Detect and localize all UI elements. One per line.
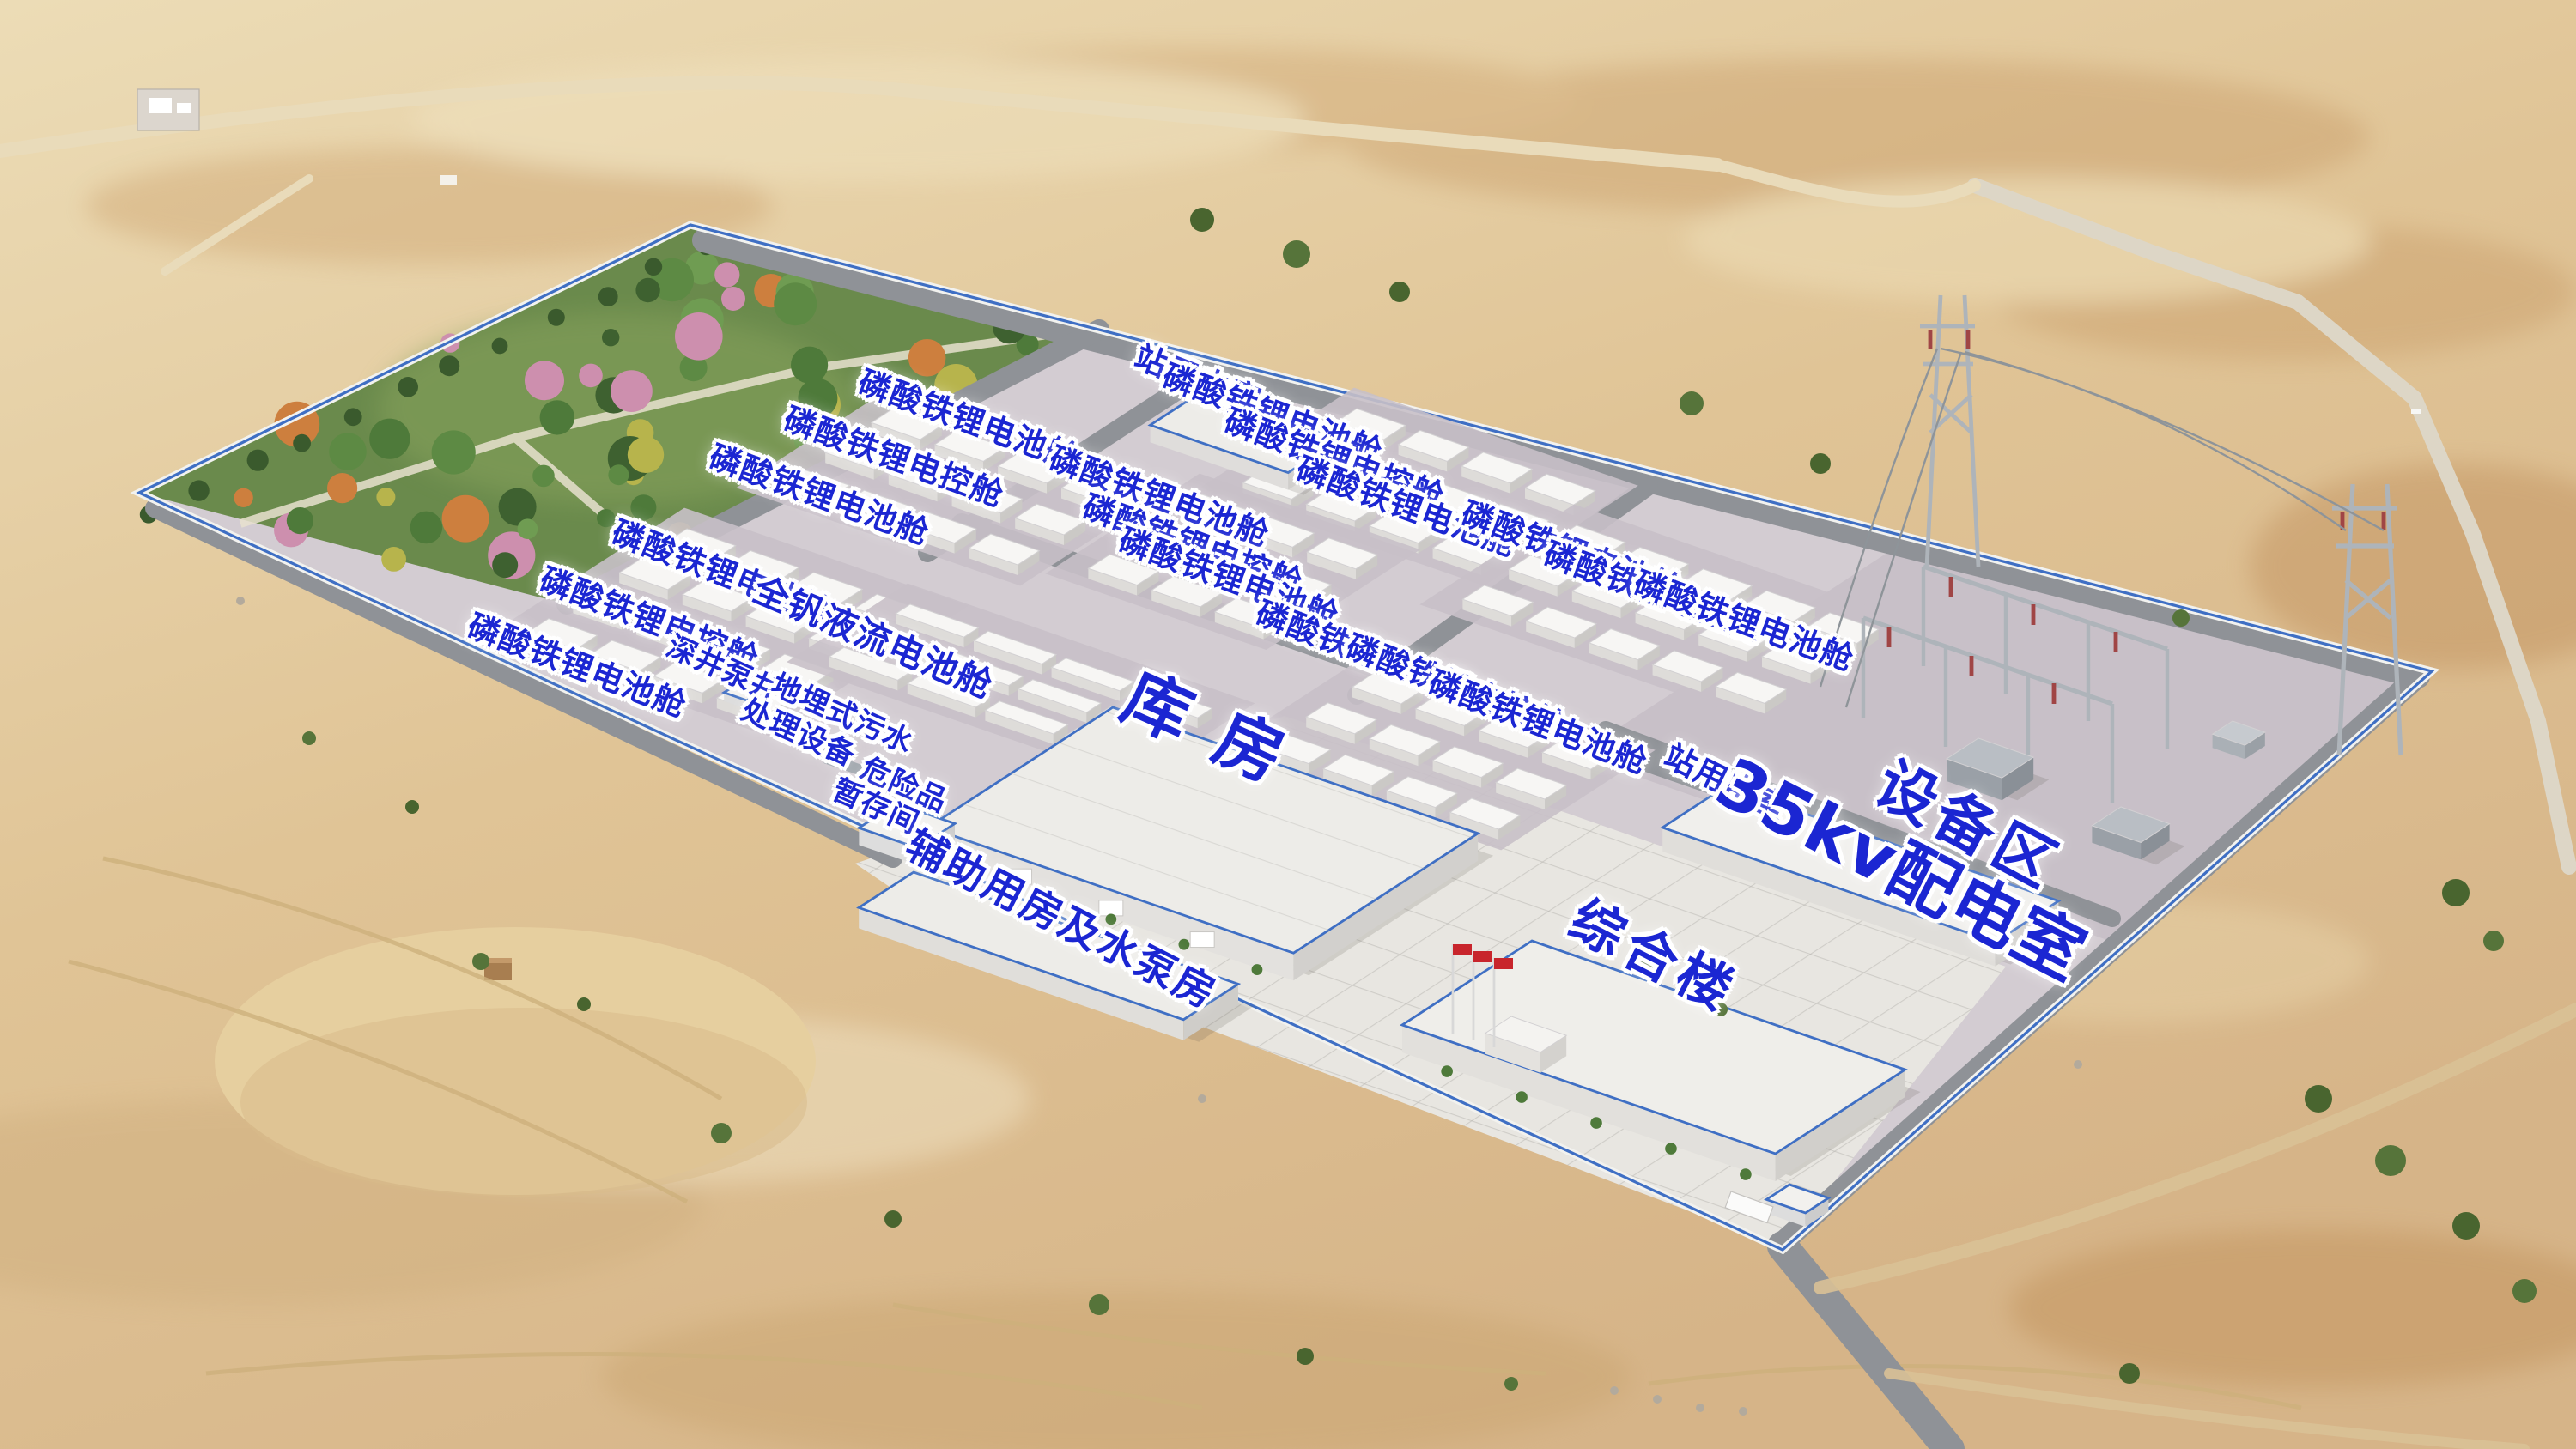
red-flag — [1453, 944, 1472, 955]
tree — [369, 419, 410, 459]
tree — [327, 473, 357, 503]
tree — [492, 552, 518, 578]
tree — [525, 361, 564, 400]
pine-tree — [188, 480, 209, 500]
tree — [442, 495, 489, 543]
tree — [579, 364, 603, 388]
tree — [234, 488, 252, 507]
pine-tree — [548, 309, 565, 326]
tree — [376, 488, 395, 506]
pine-tree — [293, 434, 311, 452]
tree — [611, 370, 653, 412]
tree — [532, 465, 555, 488]
tree — [602, 329, 619, 346]
tree — [597, 509, 615, 527]
pine-tree — [398, 377, 418, 397]
tree — [774, 282, 817, 325]
tree — [721, 287, 745, 311]
red-flag — [1494, 958, 1513, 969]
tree — [329, 433, 367, 470]
tree — [432, 430, 476, 474]
aerial-render: 站用电室磷酸铁锂电池舱磷酸铁锂电控舱磷酸铁锂电池舱磷酸铁锂电池舱磷酸铁锂电控舱磷… — [0, 0, 2576, 1449]
tree — [675, 312, 723, 361]
pine-tree — [598, 287, 618, 306]
tree — [630, 494, 656, 520]
tree — [518, 518, 538, 539]
tree — [608, 464, 629, 485]
tree — [714, 262, 739, 287]
pine-tree — [645, 258, 662, 276]
pine-tree — [247, 450, 269, 471]
pine-tree — [492, 338, 508, 355]
red-flag — [1473, 951, 1492, 962]
tree — [381, 547, 406, 572]
tree — [540, 400, 574, 434]
scene-canvas — [0, 0, 2576, 1449]
tree — [908, 339, 946, 377]
tree — [410, 512, 443, 544]
tree — [798, 379, 837, 418]
tree — [287, 507, 313, 534]
tree — [635, 278, 659, 302]
tree — [628, 437, 664, 473]
pine-tree — [439, 355, 459, 376]
tree — [791, 347, 828, 384]
pine-tree — [344, 408, 362, 426]
